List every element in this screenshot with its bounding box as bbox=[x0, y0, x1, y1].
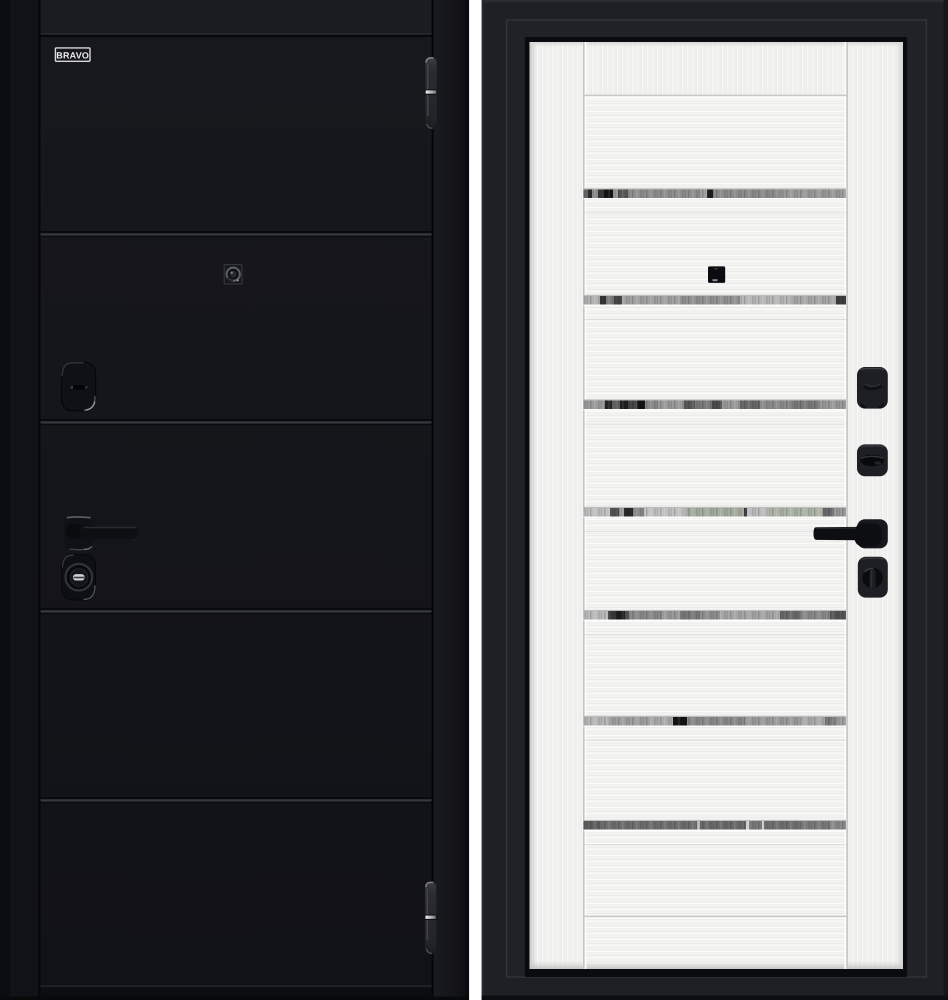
svg-text:BRAVO: BRAVO bbox=[56, 51, 89, 61]
